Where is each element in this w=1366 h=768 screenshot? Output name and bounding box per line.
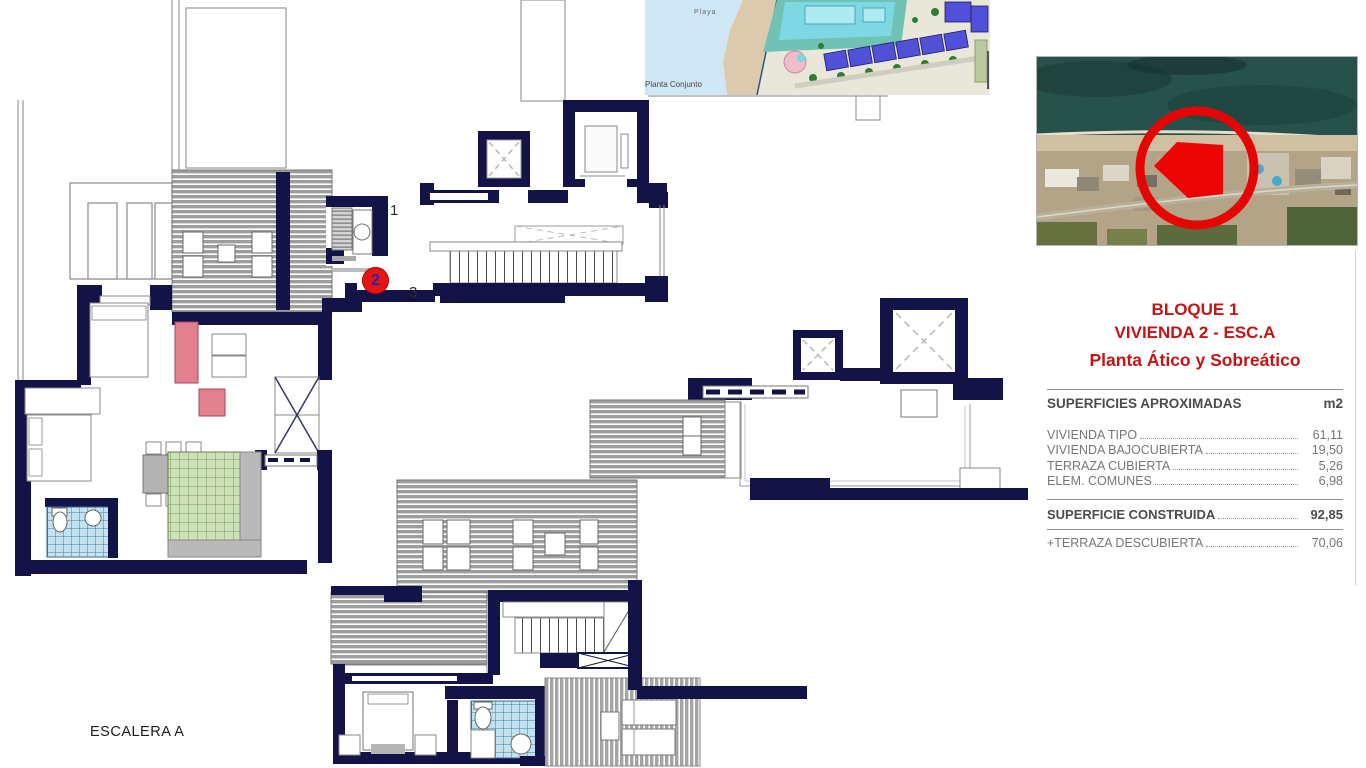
row-value: 6,98 [1301, 474, 1343, 489]
dot-leader [1140, 438, 1298, 439]
dot-leader [1155, 484, 1298, 485]
aerial-photo [1037, 57, 1357, 245]
stairs-duplex [275, 377, 319, 453]
beach-label: Playa [694, 9, 717, 16]
panel-title-floor: Planta Ático y Sobreático [1047, 349, 1343, 372]
elevator-shaft-small-icon [793, 330, 843, 380]
landing-label-1: 1 [390, 202, 398, 219]
row-label: TERRAZA CUBIERTA [1047, 459, 1170, 474]
roof-hatch-central [397, 480, 637, 600]
landing-label-3: 3 [409, 284, 417, 301]
row-label: VIVIENDA BAJOCUBIERTA [1047, 443, 1203, 458]
row-value: 61,11 [1301, 428, 1343, 443]
surfaces-table: VIVIENDA TIPO 61,11 VIVIENDA BAJOCUBIERT… [1047, 428, 1343, 489]
plaza-circle [784, 51, 806, 73]
bathroom-lower [471, 701, 537, 758]
total-value: 92,85 [1301, 507, 1343, 522]
atico-living-area [15, 285, 332, 576]
total-label: SUPERFICIE CONSTRUIDA [1047, 507, 1215, 522]
site-plan-caption: Planta Conjunto [645, 80, 702, 89]
dot-leader [1173, 469, 1298, 470]
armchair [199, 389, 225, 416]
panel-title-unit: VIVIENDA 2 - ESC.A [1047, 321, 1343, 344]
surfaces-header-label: SUPERFICIES APROXIMADAS [1047, 396, 1242, 411]
surfaces-table-header: SUPERFICIES APROXIMADAS m2 [1047, 390, 1343, 416]
info-panel: BLOQUE 1 VIVIENDA 2 - ESC.A Planta Ático… [1047, 298, 1343, 558]
table-row: TERRAZA CUBIERTA 5,26 [1047, 459, 1343, 474]
extra-value: 70,06 [1301, 536, 1343, 551]
table-row: ELEM. COMUNES 6,98 [1047, 474, 1343, 489]
kitchen-area [168, 452, 261, 557]
dot-leader [1206, 546, 1298, 547]
escalera-label: ESCALERA A [90, 724, 184, 740]
machine-room [563, 100, 649, 187]
roof-hatch-lowerleft [331, 586, 493, 684]
roof-hatch-topleft [172, 170, 332, 325]
pergola-terrace [70, 183, 172, 279]
page-edge-line [1355, 250, 1356, 585]
panel-title-block: BLOQUE 1 [1047, 298, 1343, 321]
total-row: SUPERFICIE CONSTRUIDA 92,85 [1047, 500, 1343, 529]
elevator-shaft-icon [478, 131, 530, 187]
surfaces-header-unit: m2 [1323, 396, 1343, 411]
bathroom-upper [45, 498, 118, 558]
dot-leader [1218, 518, 1298, 519]
unit-marker-badge: 2 [362, 267, 389, 294]
row-label: ELEM. COMUNES [1047, 474, 1152, 489]
row-label: VIVIENDA TIPO [1047, 428, 1137, 443]
row-value: 19,50 [1301, 443, 1343, 458]
sofa [175, 322, 198, 383]
extra-label: +TERRAZA DESCUBIERTA [1047, 536, 1203, 551]
extra-row: +TERRAZA DESCUBIERTA 70,06 [1047, 530, 1343, 557]
unit-marker-number: 2 [371, 272, 380, 290]
kitchen-nook [326, 196, 390, 272]
brochure-page: Planta Conjunto Playa [0, 0, 1366, 768]
stairs-main [430, 226, 623, 283]
elevator-shaft-large-icon [880, 298, 968, 384]
table-row: VIVIENDA BAJOCUBIERTA 19,50 [1047, 443, 1343, 458]
row-value: 5,26 [1301, 459, 1343, 474]
table-row: VIVIENDA TIPO 61,11 [1047, 428, 1343, 443]
stairs-lower [488, 590, 640, 675]
scale-bar [980, 45, 996, 95]
terrace-elevators-right [590, 298, 1028, 500]
dot-leader [1206, 453, 1298, 454]
